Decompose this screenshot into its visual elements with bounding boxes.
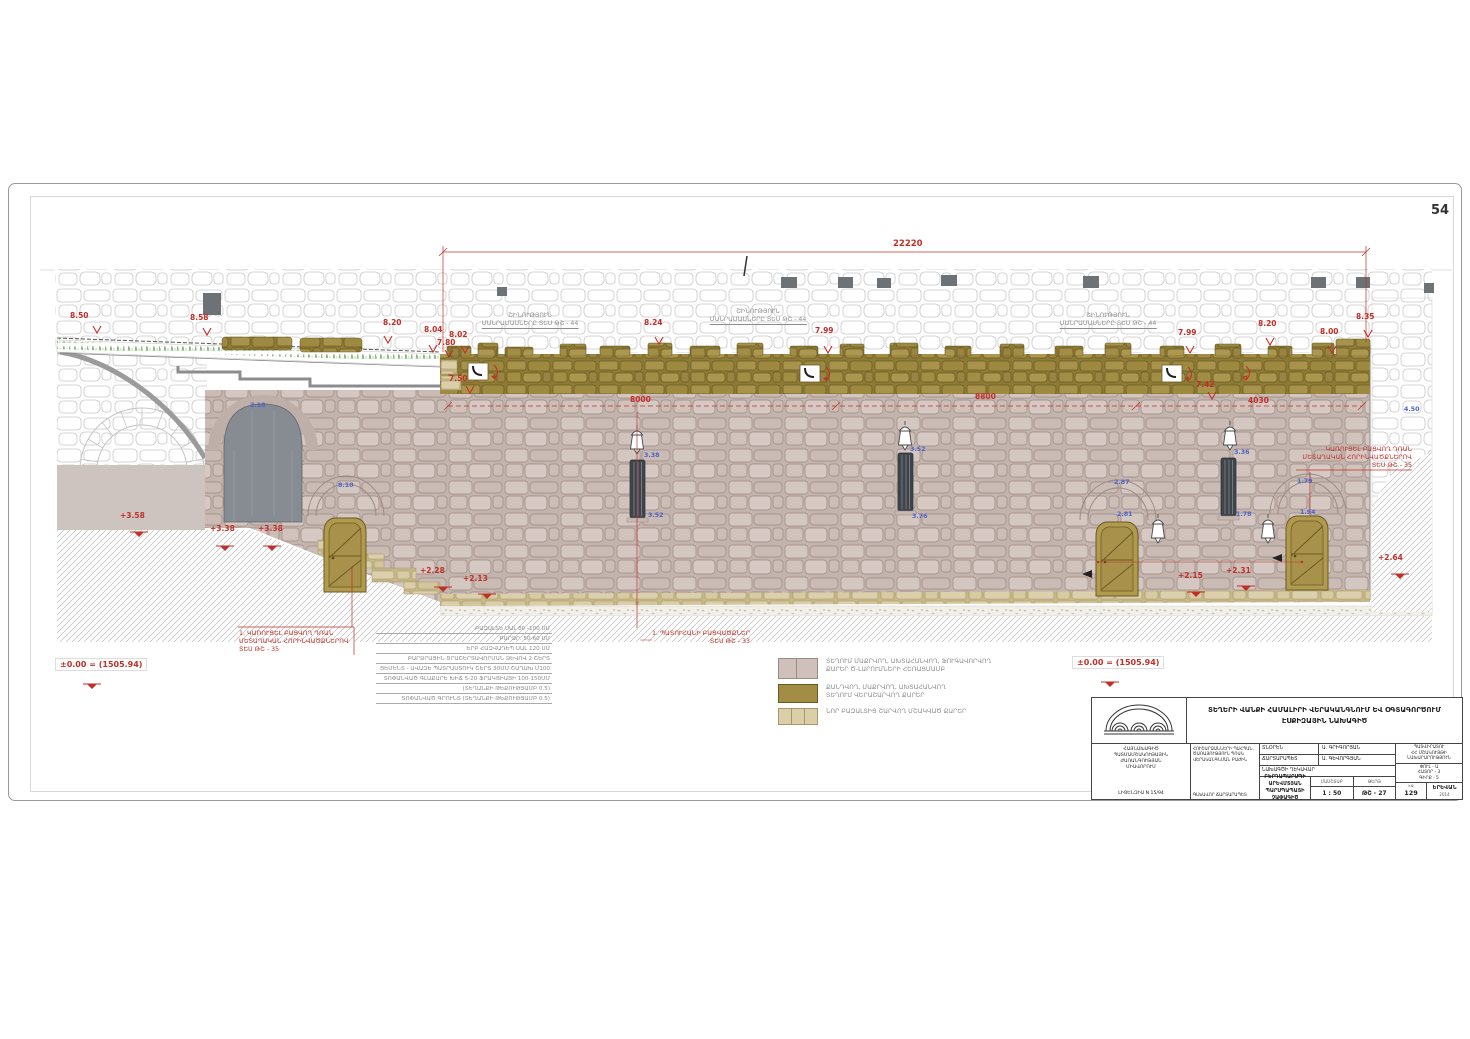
blue-dim: 3.76 — [912, 513, 928, 520]
elev-label: +2.64 — [1378, 553, 1403, 562]
signature-table: ՏՆՕՐԵՆ Ա. ԳՐԻԳՈՐՅԱՆ ՃԱՐՏԱՐԱՊԵՏ Ա. ԳԵՎՈՐԳ… — [1260, 744, 1396, 799]
dim-label: 8.35 — [1356, 312, 1375, 321]
door-note-right: ԿԱՌՈՒՑԵԼ ԲԱՑՎՈՂ ԴՌԱՆ ՄԵՏԱՂԱԿԱՆ ՀՈՐԻՆՎԱԾՔ… — [1292, 446, 1412, 471]
ref-label-2: ՇԻՆՈՒԹՅՈՒՆ ՄԱՆՐԱՄԱՍՆԵՐԸ ՏԵՍ ԹՇ - 44 — [710, 308, 807, 324]
blue-dim: 3.36 — [1234, 449, 1250, 456]
elev-label: +2.31 — [1226, 566, 1251, 575]
pavement-spec-list: ԲԱԶԱԼՏԵ ՍԱԼ 80 -100 ՍՄ ԲԱՐՁՐ. 50-60 ՍՄ Ե… — [376, 624, 552, 704]
parapet — [440, 354, 1370, 394]
blue-dim: 4.50 — [1404, 406, 1420, 413]
page-cell: ԷՋ 129 — [1396, 783, 1427, 799]
window-note: 1. ՊԱՏՈՒՀԱՆԻ ԲԱՑՎԱԾՔՆԵՐ ՏԵՍ ԹՇ - 33 — [652, 630, 750, 646]
blue-dim: 1.78 — [1236, 511, 1252, 518]
elev-label: +2.15 — [1178, 571, 1203, 580]
elev-label: +3.58 — [120, 511, 145, 520]
legend: ՏԵՂՈՒՄ ՄԱՔՐՎՈՂ, ԱԽՏԱՀԱՆՎՈՂ, ՖՈՒԳԱՎՈՐՎՈՂ … — [778, 658, 1078, 730]
org-logo — [1092, 698, 1187, 743]
drawing-sheet: 54 8.50 8.58 8.20 8.04 8.02 7.80 7.50 8.… — [0, 0, 1470, 1039]
dim-label: 7.42 — [1196, 380, 1215, 389]
sheet-page-number: 54 — [1425, 203, 1455, 218]
blue-dim: 3.52 — [910, 446, 926, 453]
dim-label: 7.80 — [437, 338, 456, 347]
org-cell: ՀԱՅՆԱԽԱԳԻԾ ՊԱՏՄԱՄՇԱԿՈՒԹԱՅԻՆ ԺԱՌԱՆԳՈՒԹՅԱՆ… — [1092, 744, 1191, 799]
dim-label: 7.50 — [449, 374, 468, 383]
dim-label: 8.20 — [383, 318, 402, 327]
dim-label: 4030 — [1248, 396, 1269, 405]
legend-swatch-existing — [778, 658, 818, 679]
elev-label: +2.13 — [463, 574, 488, 583]
dim-label: 7.99 — [815, 326, 834, 335]
dim-label: 8.00 — [1320, 327, 1339, 336]
dim-label: 8.04 — [424, 325, 443, 334]
dim-label: 8.20 — [1258, 319, 1277, 328]
dim-label: 7.99 — [1178, 328, 1197, 337]
title-block: ՏԵՂԵՐԻ ՎԱՆՔԻ ՀԱՄԱԼԻՐԻ ՎԵՐԱԿԱՆԳՆՈՒՄ ԵՎ ՕԳ… — [1091, 697, 1463, 800]
legend-swatch-new-basalt — [778, 708, 818, 725]
city-cell: ԵՐԵՎԱՆ 2014 — [1427, 783, 1462, 799]
door-2 — [1096, 522, 1138, 596]
door-3 — [1286, 516, 1328, 590]
license-number: ԼԻՑԵՆԶԻԱ N 15/94 — [1094, 791, 1188, 797]
blue-dim: 2.87 — [1114, 479, 1130, 486]
blue-dim: 3.18 — [250, 402, 266, 409]
window-1 — [627, 460, 648, 522]
door-1 — [324, 518, 366, 592]
legend-item: ՔԱՆԴՎՈՂ, ՄԱՔՐՎՈՂ, ԱԽՏԱՀԱՆՎՈՂ ՏԵՂՈՒՄ ՎԵՐԱ… — [778, 684, 1078, 703]
elev-label: +3.38 — [258, 524, 283, 533]
elev-label: +2.28 — [420, 566, 445, 575]
scale-cell: ՄԱՍՇՏԱԲ 1 : 50 — [1311, 777, 1354, 799]
ref-label-3: ՇԻՆՈՒԹՅՈՒՆ ՄԱՆՐԱՄԱՍՆԵՐԸ ՏԵՍ ԹՇ - 44 — [1060, 312, 1157, 328]
dim-label: 8.24 — [644, 318, 663, 327]
ref-label-1: ՇԻՆՈՒԹՅՈՒՆ ՄԱՆՐԱՄԱՍՆԵՐԸ ՏԵՍ ԹՇ - 44 — [482, 312, 579, 328]
blue-dim: 3.38 — [644, 452, 660, 459]
elev-label: +3.38 — [210, 524, 235, 533]
blue-dim: 3.52 — [648, 512, 664, 519]
blue-dim: 1.94 — [1300, 509, 1316, 516]
dim-label: 8800 — [975, 392, 996, 401]
legend-item: ՆՈՐ ԲԱԶԱԼՏԻՑ ՇԱՐՎՈՂ ՄՇԱԿՎԱԾ ՔԱՐԵՐ — [778, 708, 1078, 725]
overall-dim-label: 22220 — [893, 239, 923, 249]
blue-dim: 1.79 — [1297, 478, 1313, 485]
elevation-drawing — [0, 0, 1470, 1039]
legend-swatch-relaid — [778, 684, 818, 703]
arch-opening — [224, 404, 302, 522]
drawing-title: ԲԵՐԴԱՊԱՐՍՊԻ ԱՐԵՎՄՏՅԱՆ ՊԱՐՍՊԱՊԱՏԻ ՉԱՓԱԳԻԾ — [1260, 777, 1311, 799]
dim-label: 8000 — [630, 395, 651, 404]
dim-label: 8.58 — [190, 313, 209, 322]
door-note-left: 1. ԿԱՌՈՒՑԵԼ ԲԱՑՎՈՂ ԴՌԱՆ ՄԵՏԱՂԱԿԱՆ ՀՈՐԻՆՎ… — [239, 630, 349, 655]
sheet-cell: ԹԵՐԹ ԹՇ - 27 — [1354, 777, 1396, 799]
datum-label-right: ±0.00 = (1505.94) — [1072, 656, 1164, 669]
project-title: ՏԵՂԵՐԻ ՎԱՆՔԻ ՀԱՄԱԼԻՐԻ ՎԵՐԱԿԱՆԳՆՈՒՄ ԵՎ ՕԳ… — [1187, 698, 1462, 743]
blue-dim: 8.10 — [338, 482, 354, 489]
window-2 — [895, 453, 916, 515]
blue-dim: 2.81 — [1117, 511, 1133, 518]
dept-cell: ՀՈՒՇԱՐՁԱՆՆԵՐԻ ՊԱՀՊԱՆ. ԾԱՌԱՅՈՒԹՅՈՒՆ ՊՈԱԿ … — [1191, 744, 1260, 799]
datum-label-left: ±0.00 = (1505.94) — [55, 658, 147, 671]
dim-label: 8.50 — [70, 311, 89, 320]
legend-item: ՏԵՂՈՒՄ ՄԱՔՐՎՈՂ, ԱԽՏԱՀԱՆՎՈՂ, ՖՈՒԳԱՎՈՐՎՈՂ … — [778, 658, 1078, 679]
client-cell: ՊԱՏՎԻՐԱՏՈՒ ՀՀ ՄՇԱԿՈՒՅԹԻ ՆԱԽԱՐԱՐՈՒԹՅՈՒՆ Փ… — [1396, 744, 1462, 799]
